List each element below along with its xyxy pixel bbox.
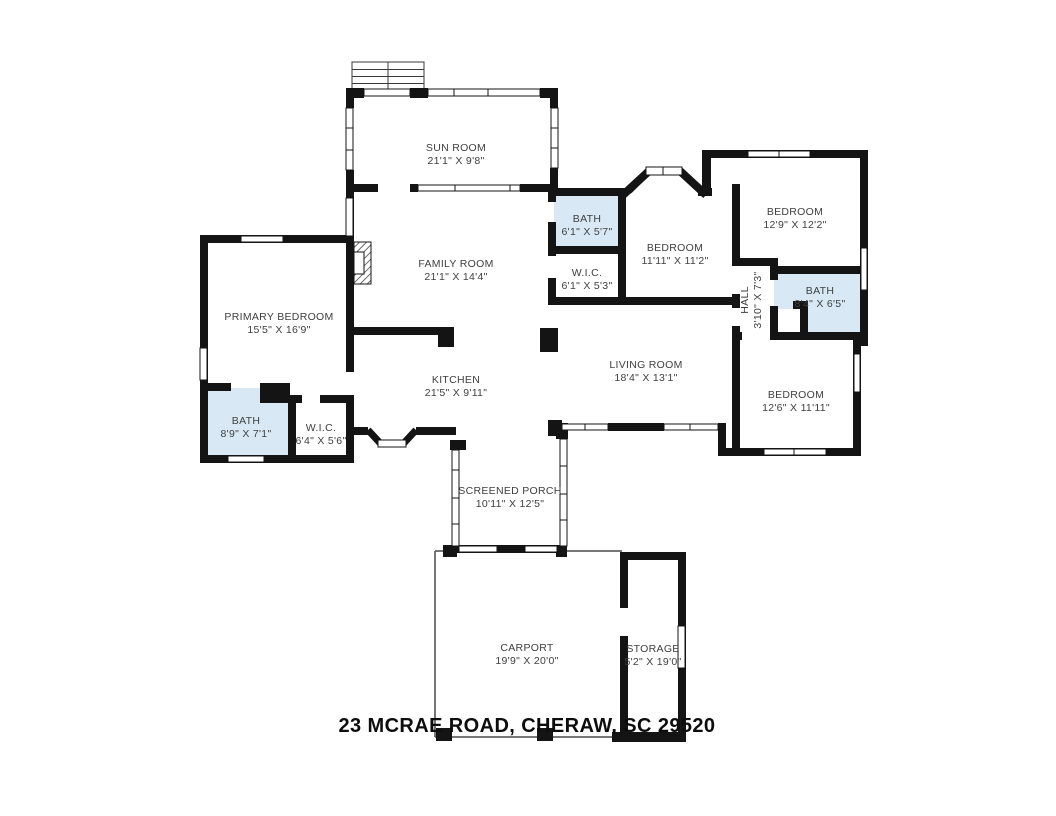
room-dims: 11'11" X 11'2": [641, 255, 708, 267]
room-label-primary-bedroom: PRIMARY BEDROOM 15'5" X 16'9": [224, 311, 333, 336]
room-name: BATH: [232, 415, 260, 427]
room-label-wic-left: W.I.C. 6'4" X 5'6": [296, 422, 347, 447]
room-dims: 21'1" X 9'8": [427, 155, 484, 167]
room-dims: 5'2" X 19'0": [624, 656, 681, 668]
address-title: 23 MCRAE ROAD, CHERAW, SC 29520: [339, 715, 716, 737]
room-name: W.I.C.: [306, 422, 336, 434]
room-dims: 21'5" X 9'11": [425, 387, 487, 399]
room-name: W.I.C.: [572, 267, 602, 279]
floor-plan: SUN ROOM 21'1" X 9'8" FAMILY ROOM 21'1" …: [0, 0, 1056, 816]
room-name: BEDROOM: [767, 206, 823, 218]
room-label-family-room: FAMILY ROOM 21'1" X 14'4": [418, 258, 493, 283]
room-label-living-room: LIVING ROOM 18'4" X 13'1": [609, 359, 682, 384]
room-name: STORAGE: [626, 643, 679, 655]
room-dims: 12'9" X 12'2": [763, 219, 826, 231]
room-label-storage: STORAGE 5'2" X 19'0": [624, 643, 681, 668]
room-name: HALL: [739, 286, 751, 313]
room-dims: 15'5" X 16'9": [247, 324, 310, 336]
room-dims: 19'9" X 20'0": [495, 655, 558, 667]
room-dims: 8'4" X 6'5": [795, 298, 846, 310]
bath-right-closet-floor: [778, 309, 800, 332]
room-dims: 21'1" X 14'4": [424, 271, 487, 283]
fireplace: [354, 242, 371, 284]
room-name: KITCHEN: [432, 374, 480, 386]
room-dims: 8'9" X 7'1": [221, 428, 272, 440]
room-label-bedroom-top-right: BEDROOM 12'9" X 12'2": [763, 206, 826, 231]
room-name: PRIMARY BEDROOM: [224, 311, 333, 323]
room-label-screened-porch: SCREENED PORCH 10'11" X 12'5": [458, 485, 561, 510]
room-dims: 12'6" X 11'11": [762, 402, 830, 414]
room-label-bedroom-middle: BEDROOM 11'11" X 11'2": [641, 242, 708, 267]
room-name: FAMILY ROOM: [418, 258, 493, 270]
room-name: CARPORT: [500, 642, 554, 654]
room-name: BATH: [806, 285, 834, 297]
room-dims: 10'11" X 12'5": [476, 498, 545, 510]
room-name: BEDROOM: [647, 242, 703, 254]
room-name: BATH: [573, 213, 601, 225]
room-dims: 3'10" X 7'3": [752, 271, 764, 328]
room-label-sun-room: SUN ROOM 21'1" X 9'8": [426, 142, 486, 167]
room-dims: 18'4" X 13'1": [614, 372, 677, 384]
room-name: SUN ROOM: [426, 142, 486, 154]
room-label-kitchen: KITCHEN 21'5" X 9'11": [425, 374, 487, 399]
room-label-carport: CARPORT 19'9" X 20'0": [495, 642, 558, 667]
room-dims: 6'1" X 5'3": [562, 280, 613, 292]
room-label-hall: HALL 3'10" X 7'3": [739, 271, 764, 328]
room-label-wic-top: W.I.C. 6'1" X 5'3": [562, 267, 613, 292]
room-name: LIVING ROOM: [609, 359, 682, 371]
windows-layer: [200, 89, 867, 668]
room-name: BEDROOM: [768, 389, 824, 401]
deck-steps: [352, 62, 424, 90]
room-name: SCREENED PORCH: [458, 485, 561, 497]
room-dims: 6'1" X 5'7": [562, 226, 613, 238]
room-dims: 6'4" X 5'6": [296, 435, 347, 447]
floor-plan-page: SUN ROOM 21'1" X 9'8" FAMILY ROOM 21'1" …: [0, 0, 1056, 816]
room-label-bedroom-bottom-right: BEDROOM 12'6" X 11'11": [762, 389, 830, 414]
